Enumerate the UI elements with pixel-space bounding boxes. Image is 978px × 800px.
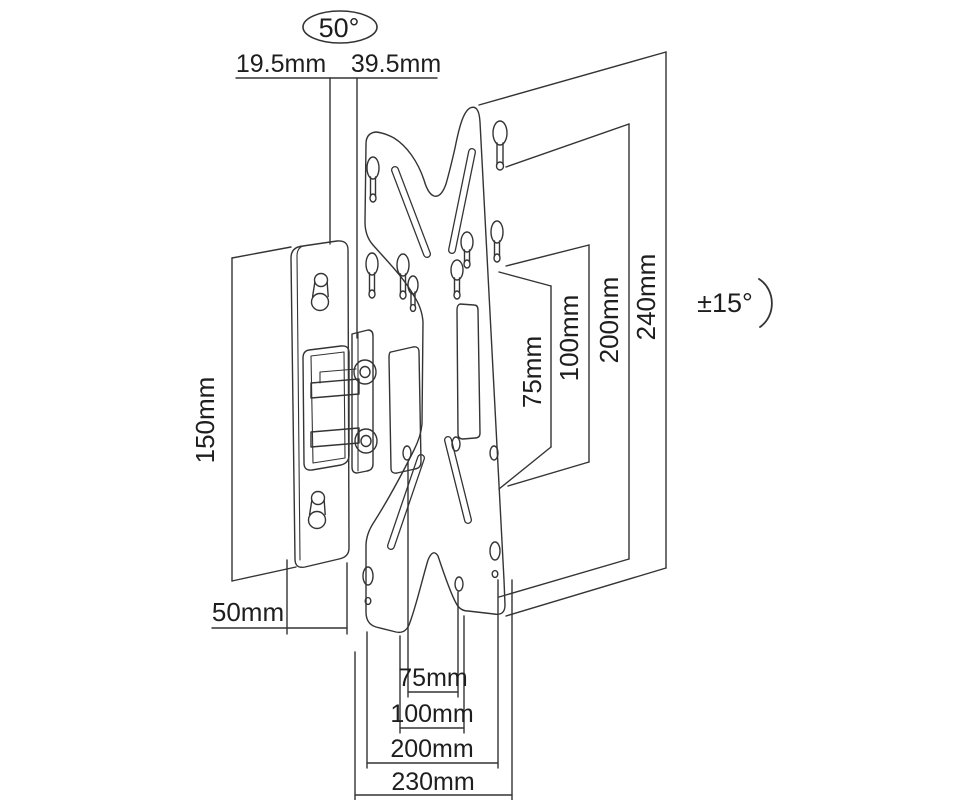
- wall-keyhole-top: [312, 274, 329, 311]
- bottom-100-label: 100mm: [390, 700, 473, 728]
- wall-plate-height-label: 150mm: [190, 377, 220, 464]
- offset-19-5-label: 19.5mm: [236, 50, 326, 78]
- wall-plate-height-dimension: [232, 247, 296, 581]
- vesa-cutout-right: [457, 304, 480, 439]
- swivel-angle-label: 50°: [319, 13, 360, 43]
- vesa-cutout-left: [389, 347, 421, 473]
- bottom-230-label: 230mm: [391, 768, 474, 796]
- hinge-assembly: [303, 329, 377, 473]
- wall-keyhole-bottom: [309, 492, 326, 529]
- technical-drawing-canvas: 50° 19.5mm 39.5mm 150mm 50mm 75mm 100mm …: [0, 0, 978, 800]
- tilt-arrow-up-icon: [755, 267, 769, 280]
- wall-plate: [291, 241, 349, 567]
- bottom-75-label: 75mm: [398, 664, 467, 692]
- wall-plate-width-label: 50mm: [212, 597, 284, 627]
- tilt-indicator: [755, 267, 772, 339]
- hinge-pin: [344, 329, 357, 352]
- wall-mount-diagram: 50° 19.5mm 39.5mm 150mm 50mm 75mm 100mm …: [0, 0, 978, 800]
- vesa-plate: [363, 107, 507, 632]
- side-240-label: 240mm: [631, 254, 661, 341]
- drawing-lines: [212, 8, 772, 800]
- vesa-keyholes: [363, 121, 507, 604]
- dim-75-horizontal: [408, 462, 458, 697]
- vesa-plate-outline: [365, 107, 505, 632]
- offset-39-5-label: 39.5mm: [351, 50, 441, 78]
- side-100-label: 100mm: [554, 295, 584, 382]
- dimension-labels: 50° 19.5mm 39.5mm 150mm 50mm 75mm 100mm …: [190, 13, 753, 796]
- hinge-boss: [303, 346, 349, 470]
- side-200-label: 200mm: [594, 277, 624, 364]
- side-75-label: 75mm: [517, 336, 547, 408]
- tilt-angle-label: ±15°: [697, 288, 753, 318]
- tilt-arrow-down-icon: [756, 326, 770, 339]
- bottom-200-label: 200mm: [390, 735, 473, 763]
